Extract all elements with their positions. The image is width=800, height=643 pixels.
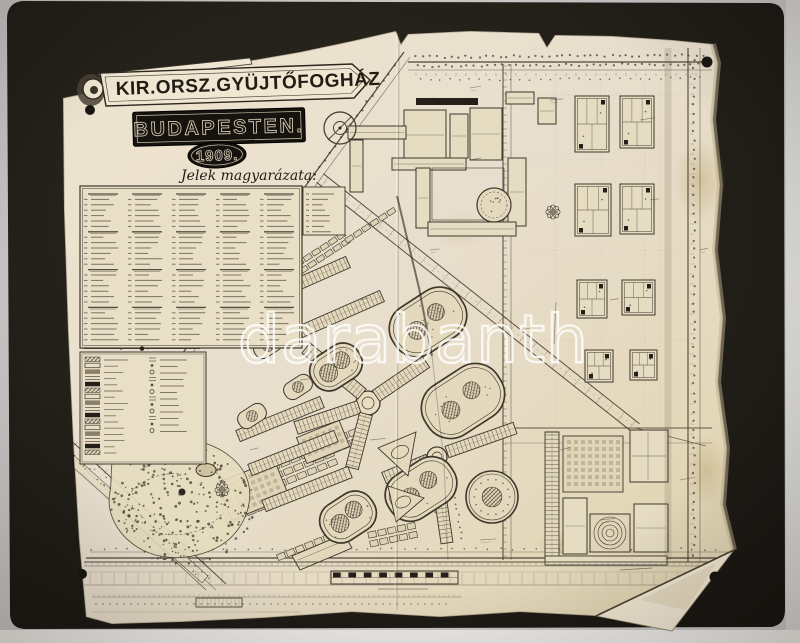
watermark-text: darabanth (238, 301, 589, 378)
prison-map-photo: KIR.ORSZ.GYÜJTŐFOGHÁZ BUDAPESTEN. 1909. … (0, 0, 800, 643)
